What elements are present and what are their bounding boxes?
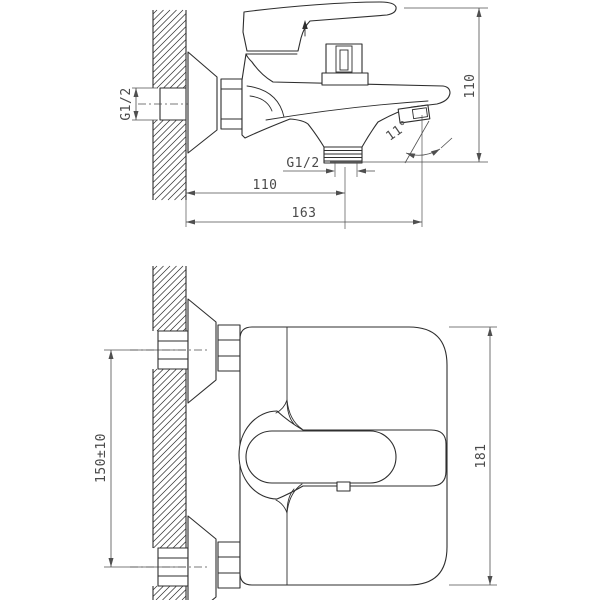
outlet-thread-label: G1/2	[286, 156, 319, 171]
overall-height-label: 110	[463, 74, 478, 99]
handle-lever-side	[243, 2, 396, 51]
technical-drawing: G1/2 110 G1/2 110	[0, 0, 600, 600]
escutcheon-side	[188, 52, 217, 153]
wall-to-spout-label: 163	[292, 206, 317, 221]
diverter-knob	[322, 44, 368, 85]
top-inlet-fitting	[130, 299, 240, 403]
front-view: 150±10 181	[94, 266, 497, 600]
inlet-spacing-label: 150±10	[94, 433, 109, 483]
shower-outlet-thread	[324, 147, 362, 163]
drawing-stage: G1/2 110 G1/2 110	[0, 0, 600, 600]
wall-to-outlet-label: 110	[253, 178, 278, 193]
handle-grip-recess	[246, 431, 396, 483]
handle-notch	[337, 482, 350, 491]
dimension-overall-width: 181	[449, 327, 497, 585]
dimension-spout-angle: 11°	[383, 118, 452, 163]
dimension-inlet-spacing: 150±10	[94, 350, 186, 567]
side-view: G1/2 110 G1/2 110	[119, 2, 488, 229]
connection-nut-side	[221, 79, 242, 129]
overall-width-label: 181	[474, 444, 489, 469]
bottom-inlet-fitting	[130, 516, 240, 600]
dimension-wall-to-outlet: 110	[186, 167, 345, 229]
inlet-thread-label: G1/2	[119, 87, 134, 120]
